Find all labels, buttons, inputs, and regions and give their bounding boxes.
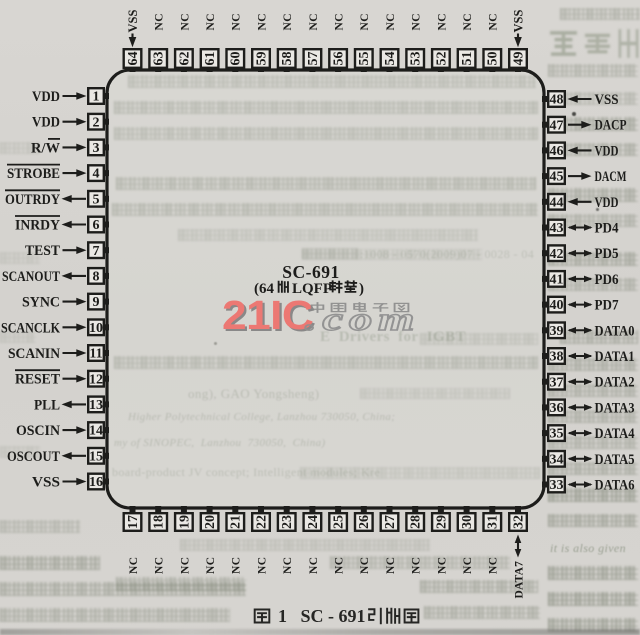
svg-text:VDD: VDD: [595, 143, 619, 159]
svg-text:NC: NC: [334, 556, 346, 574]
svg-text:SCANCLK: SCANCLK: [1, 320, 61, 336]
svg-text:NC: NC: [282, 13, 294, 31]
svg-text:NC: NC: [205, 556, 217, 574]
svg-text:49: 49: [511, 52, 526, 66]
svg-text:NC: NC: [282, 556, 294, 574]
svg-text:36: 36: [550, 401, 564, 416]
svg-text:28: 28: [409, 515, 424, 529]
svg-text:VDD: VDD: [595, 195, 619, 211]
svg-text:38: 38: [550, 350, 564, 365]
svg-text:61: 61: [203, 52, 218, 66]
svg-text:NC: NC: [334, 13, 346, 31]
svg-text:NC: NC: [488, 13, 500, 31]
svg-text:NC: NC: [488, 556, 500, 574]
svg-text:39: 39: [550, 324, 564, 339]
svg-text:33: 33: [550, 478, 564, 493]
svg-text:NC: NC: [308, 556, 320, 574]
svg-text:18: 18: [152, 515, 167, 529]
svg-text:DATA2: DATA2: [595, 375, 635, 391]
svg-text:37: 37: [550, 375, 564, 390]
svg-text:27: 27: [383, 515, 398, 529]
svg-text:1: 1: [93, 90, 100, 105]
svg-text:41: 41: [550, 273, 564, 288]
svg-text:14: 14: [89, 424, 103, 439]
svg-text:NC: NC: [179, 556, 191, 574]
svg-text:VDD: VDD: [32, 89, 60, 105]
svg-text:NC: NC: [256, 556, 268, 574]
svg-text:5: 5: [93, 192, 100, 207]
svg-text:DACP: DACP: [595, 118, 627, 134]
svg-text:1 SC - 691: 1 SC - 691: [278, 606, 366, 626]
svg-text:29: 29: [434, 515, 449, 529]
svg-text:STROBE: STROBE: [7, 166, 60, 182]
svg-text:DATA1: DATA1: [595, 349, 635, 365]
svg-text:59: 59: [254, 52, 269, 66]
svg-text:PD7: PD7: [595, 298, 619, 314]
svg-text:40: 40: [550, 298, 564, 313]
svg-text:NC: NC: [205, 13, 217, 31]
svg-text:55: 55: [357, 52, 372, 66]
svg-text:47: 47: [550, 118, 564, 133]
svg-text:SC-691: SC-691: [282, 262, 339, 282]
svg-text:50: 50: [486, 52, 501, 66]
svg-text:RESET: RESET: [15, 372, 60, 388]
svg-text:19: 19: [177, 515, 192, 529]
svg-text:24: 24: [306, 515, 321, 529]
svg-text:30: 30: [460, 515, 475, 529]
svg-text:34: 34: [550, 452, 564, 467]
svg-text:11: 11: [89, 347, 102, 362]
svg-text:56: 56: [332, 52, 347, 66]
svg-text:NC: NC: [436, 13, 448, 31]
svg-text:7: 7: [93, 244, 100, 259]
svg-text:PD5: PD5: [595, 246, 619, 262]
svg-text:VSS: VSS: [126, 10, 140, 33]
svg-text:OSCOUT: OSCOUT: [7, 449, 60, 465]
svg-text:NC: NC: [462, 556, 474, 574]
svg-text:): ): [359, 281, 364, 297]
svg-text:51: 51: [460, 52, 475, 66]
svg-text:53: 53: [409, 52, 424, 66]
svg-text:22: 22: [254, 515, 269, 529]
svg-text:NC: NC: [154, 556, 166, 574]
svg-text:62: 62: [177, 52, 192, 66]
svg-text:NC: NC: [359, 13, 371, 31]
svg-text:INRDY: INRDY: [15, 218, 60, 234]
svg-text:48: 48: [550, 93, 564, 108]
svg-text:DATA0: DATA0: [595, 323, 635, 339]
svg-text:NC: NC: [411, 13, 423, 31]
svg-text:SYNC: SYNC: [22, 295, 60, 311]
svg-text:13: 13: [89, 398, 103, 413]
svg-text:NC: NC: [154, 13, 166, 31]
svg-text:3: 3: [93, 141, 100, 156]
svg-text:63: 63: [152, 52, 167, 66]
svg-text:TEST: TEST: [25, 243, 60, 259]
svg-text:31: 31: [486, 515, 501, 529]
svg-text:SCANIN: SCANIN: [8, 346, 60, 362]
svg-text:DATA3: DATA3: [595, 400, 635, 416]
svg-text:VSS: VSS: [512, 10, 526, 33]
svg-text:DATA6: DATA6: [595, 478, 635, 494]
svg-text:NC: NC: [231, 13, 243, 31]
svg-text:21: 21: [229, 515, 244, 529]
svg-text:NC: NC: [359, 556, 371, 574]
svg-text:SCANOUT: SCANOUT: [2, 269, 60, 285]
svg-text:26: 26: [357, 515, 372, 529]
svg-text:12: 12: [89, 372, 103, 387]
svg-text:VSS: VSS: [32, 475, 60, 491]
svg-text:32: 32: [511, 515, 526, 529]
svg-text:17: 17: [126, 515, 141, 529]
svg-text:57: 57: [306, 52, 321, 66]
svg-text:46: 46: [550, 144, 564, 159]
svg-text:DACM: DACM: [595, 169, 627, 185]
svg-text:NC: NC: [462, 13, 474, 31]
svg-text:NC: NC: [308, 13, 320, 31]
svg-text:OUTRDY: OUTRDY: [5, 192, 60, 208]
svg-text:OSCIN: OSCIN: [16, 423, 60, 439]
svg-text:45: 45: [550, 170, 564, 185]
svg-text:VSS: VSS: [595, 92, 619, 108]
svg-text:16: 16: [89, 475, 103, 490]
svg-text:NC: NC: [256, 13, 268, 31]
svg-text:10: 10: [89, 321, 103, 336]
svg-text:NC: NC: [436, 556, 448, 574]
svg-text:35: 35: [550, 427, 564, 442]
svg-text:58: 58: [280, 52, 295, 66]
svg-text:43: 43: [550, 221, 564, 236]
svg-text:NC: NC: [385, 556, 397, 574]
svg-text:52: 52: [434, 52, 449, 66]
svg-text:25: 25: [332, 515, 347, 529]
svg-text:DATA4: DATA4: [595, 426, 635, 442]
svg-text:2: 2: [93, 115, 100, 130]
svg-text:9: 9: [93, 295, 100, 310]
svg-text:44: 44: [550, 195, 564, 210]
svg-text:23: 23: [280, 515, 295, 529]
svg-text:PD6: PD6: [595, 272, 619, 288]
svg-text:DATA5: DATA5: [595, 452, 635, 468]
svg-text:DATA7: DATA7: [513, 561, 525, 599]
svg-text:NC: NC: [128, 556, 140, 574]
svg-text:NC: NC: [411, 556, 423, 574]
svg-text:PLL: PLL: [34, 397, 60, 413]
svg-text:NC: NC: [231, 556, 243, 574]
svg-text:4: 4: [93, 167, 100, 182]
svg-text:PD4: PD4: [595, 221, 619, 237]
svg-text:NC: NC: [385, 13, 397, 31]
svg-text:20: 20: [203, 515, 218, 529]
svg-text:60: 60: [229, 52, 244, 66]
svg-text:15: 15: [89, 449, 103, 464]
svg-text:54: 54: [383, 52, 398, 66]
svg-text:R/W: R/W: [31, 140, 61, 156]
svg-text:6: 6: [93, 218, 100, 233]
svg-text:64: 64: [126, 52, 141, 66]
svg-text:NC: NC: [179, 13, 191, 31]
svg-text:42: 42: [550, 247, 564, 262]
svg-text:8: 8: [93, 270, 100, 285]
svg-text:VDD: VDD: [32, 115, 60, 131]
